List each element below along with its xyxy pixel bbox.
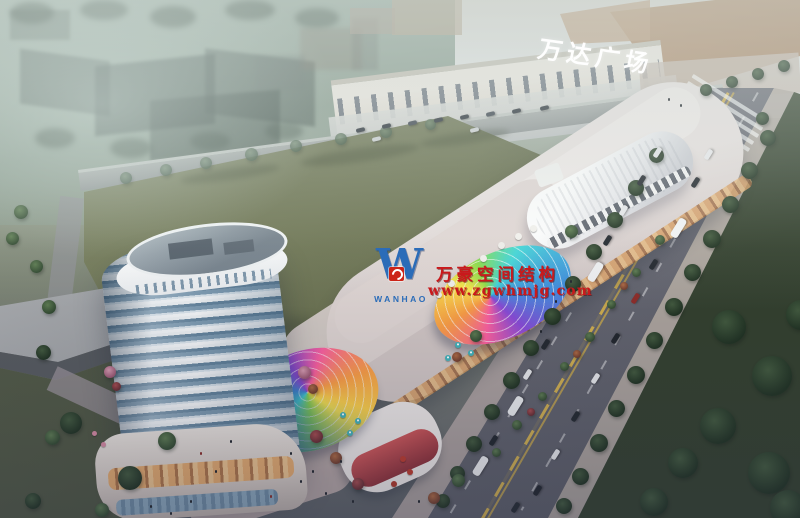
street-tree	[42, 300, 56, 314]
white-umbrella	[463, 267, 470, 274]
deck-tree	[452, 352, 462, 362]
street-tree	[160, 164, 172, 176]
deck-tree	[470, 330, 482, 342]
pedestrian	[325, 492, 327, 495]
tree-canopy-blob	[265, 122, 303, 140]
pedestrian	[668, 98, 670, 101]
deck-tree	[620, 282, 628, 290]
aerial-rendering-scene: 万达广场 W WANHAO 万豪空间结构 www.zgwhmjg.com	[0, 0, 800, 518]
street-tree	[722, 196, 739, 213]
teal-umbrella	[468, 350, 474, 356]
street-tree	[95, 503, 109, 517]
pedestrian	[200, 452, 202, 455]
deck-tree	[560, 362, 569, 371]
deck-tree	[527, 408, 535, 416]
white-umbrella	[480, 255, 487, 262]
street-tree	[6, 232, 19, 245]
street-tree	[726, 76, 738, 88]
pink-umbrella	[101, 442, 106, 447]
pedestrian	[215, 470, 217, 473]
lawn-tree	[118, 466, 142, 490]
deck-tree	[607, 300, 616, 309]
pedestrian	[540, 330, 542, 333]
street-tree	[778, 60, 790, 72]
street-tree	[756, 112, 769, 125]
mall-roof-block	[392, 0, 462, 35]
pedestrian	[190, 500, 192, 503]
street-tree	[30, 260, 43, 273]
plaza-tree	[428, 492, 440, 504]
pedestrian	[555, 300, 557, 303]
teal-umbrella	[340, 412, 346, 418]
street-tree	[741, 162, 758, 179]
podium-flower-tree	[308, 384, 318, 394]
teal-umbrella	[347, 430, 353, 436]
lawn-tree	[770, 490, 800, 518]
white-umbrella	[498, 242, 505, 249]
lawn-tree	[668, 448, 698, 478]
street-tree	[466, 436, 482, 452]
rooftop-unit	[168, 238, 214, 259]
plaza-tree	[352, 478, 364, 490]
tree-canopy-blob	[190, 132, 230, 150]
street-tree	[586, 244, 602, 260]
podium-glass-band	[116, 489, 279, 516]
pedestrian	[150, 505, 152, 508]
street-tree	[703, 230, 721, 248]
pedestrian	[312, 470, 314, 473]
street-tree	[665, 298, 683, 316]
pedestrian	[418, 500, 420, 503]
tree-canopy-blob	[295, 8, 339, 28]
street-tree	[572, 468, 589, 485]
pedestrian	[270, 495, 272, 498]
teal-umbrella	[445, 355, 451, 361]
pink-umbrella	[92, 431, 97, 436]
lawn-tree	[712, 310, 746, 344]
tree-canopy-blob	[110, 138, 152, 158]
deck-tree	[655, 235, 665, 245]
deck-tree	[538, 392, 547, 401]
pedestrian	[680, 104, 682, 107]
street-tree	[245, 148, 258, 161]
lawn-tree	[60, 412, 82, 434]
pedestrian	[230, 440, 232, 443]
podium-flower-tree	[104, 366, 116, 378]
white-umbrella	[448, 280, 455, 287]
pedestrian	[300, 480, 302, 483]
street-tree	[484, 404, 500, 420]
tree-canopy-blob	[10, 2, 54, 24]
tree-canopy-blob	[35, 128, 75, 148]
street-tree	[290, 140, 302, 152]
street-tree	[608, 400, 625, 417]
pedestrian	[570, 280, 572, 283]
plaza-tree	[310, 430, 323, 443]
tree-canopy-blob	[150, 6, 196, 28]
street-tree	[120, 172, 132, 184]
red-umbrella	[407, 469, 413, 475]
pedestrian	[290, 452, 292, 455]
deck-tree	[492, 448, 501, 457]
lawn-tree	[640, 488, 668, 516]
tree-canopy-blob	[225, 0, 275, 20]
street-tree	[646, 332, 663, 349]
red-umbrella	[391, 481, 397, 487]
pedestrian	[352, 500, 354, 503]
lawn-tree	[700, 408, 736, 444]
street-tree	[503, 372, 520, 389]
white-umbrella	[530, 225, 537, 232]
podium-flower-tree	[298, 366, 311, 379]
street-tree	[684, 264, 701, 281]
white-umbrella	[436, 292, 442, 298]
deck-tree	[573, 350, 581, 358]
teal-umbrella	[355, 418, 361, 424]
street-tree	[544, 308, 561, 325]
street-tree	[565, 276, 581, 292]
tree-canopy-blob	[80, 0, 128, 20]
street-tree	[760, 130, 776, 146]
deck-tree	[512, 420, 522, 430]
street-tree	[752, 68, 764, 80]
plaza-tree	[452, 474, 465, 487]
street-tree	[36, 345, 51, 360]
street-tree	[14, 205, 28, 219]
lawn-tree	[752, 356, 792, 396]
rooftop-unit	[223, 239, 254, 255]
white-umbrella	[515, 233, 522, 240]
street-tree	[158, 432, 176, 450]
pedestrian	[170, 512, 172, 515]
teal-umbrella	[455, 342, 461, 348]
mall-roof-block	[350, 8, 395, 34]
red-umbrella	[400, 456, 406, 462]
street-tree	[700, 84, 712, 96]
deck-tree	[565, 225, 578, 238]
deck-tree	[585, 332, 595, 342]
street-tree	[200, 157, 212, 169]
deck-tree	[632, 268, 641, 277]
street-tree	[25, 493, 41, 509]
street-tree	[590, 434, 608, 452]
podium-flower-tree	[112, 382, 121, 391]
lawn-tree	[748, 452, 790, 494]
street-tree	[335, 133, 347, 145]
street-tree	[45, 430, 60, 445]
street-tree	[556, 498, 572, 514]
pedestrian	[340, 460, 342, 463]
street-tree	[523, 340, 539, 356]
street-tree	[627, 366, 645, 384]
hazy-building	[255, 55, 305, 90]
